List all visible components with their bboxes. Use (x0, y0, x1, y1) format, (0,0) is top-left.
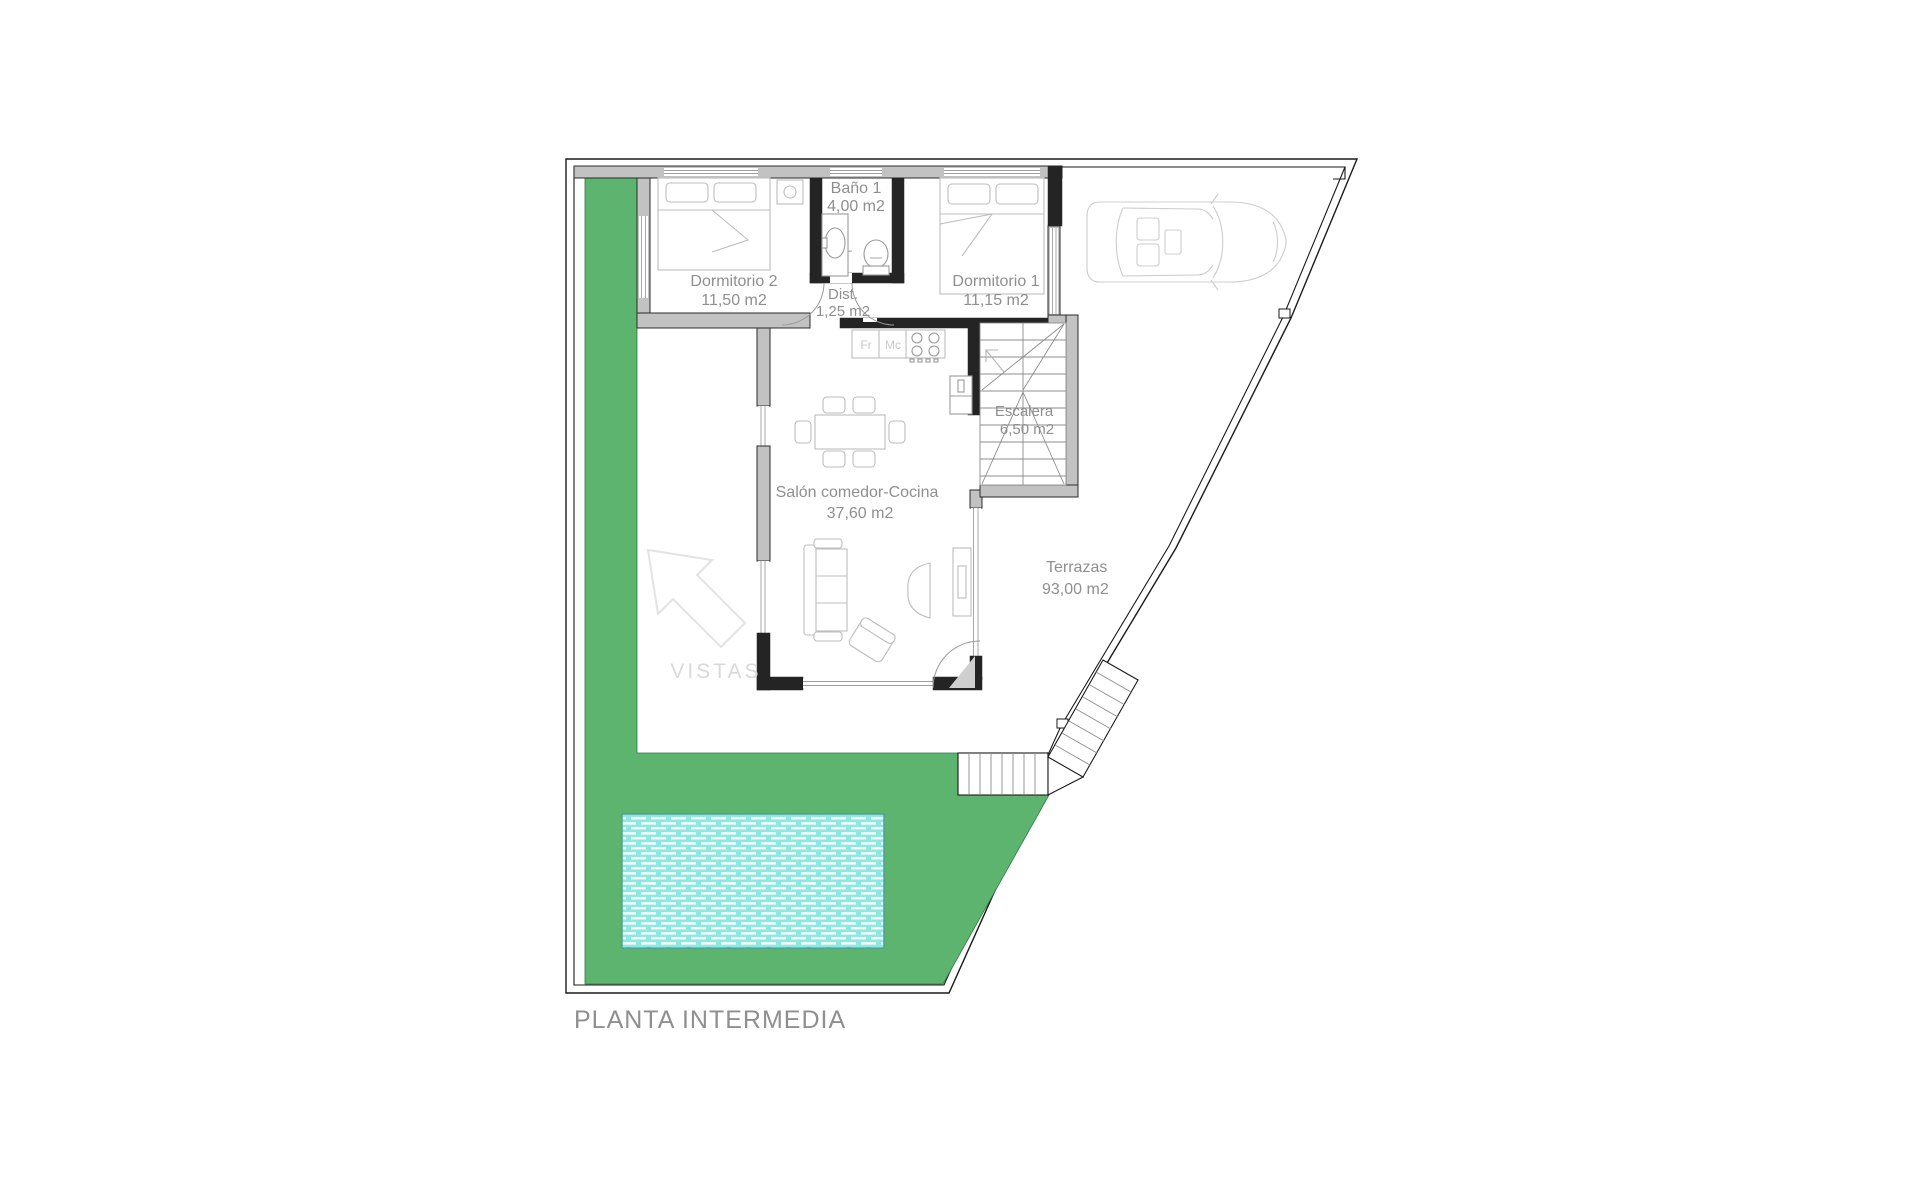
dormitorio1-name: Dormitorio 1 (952, 273, 1039, 290)
vistas-indicator: VISTAS (648, 550, 762, 683)
salon-area: 37,60 m2 (827, 505, 894, 522)
boundary-notch-top (1333, 167, 1345, 179)
nightstand-dormitorio2 (777, 180, 803, 204)
terrazas-name: Terrazas (1046, 559, 1107, 576)
boundary-notch-mid (1279, 309, 1290, 318)
floor-plan-page: Fr Mc (0, 0, 1920, 1200)
car-top-view-icon (1087, 194, 1286, 290)
escalera-name: Escalera (995, 403, 1054, 420)
label-escalera: Escalera 6,50 m2 (995, 403, 1054, 438)
dormitorio2-name: Dormitorio 2 (690, 273, 777, 290)
dining-table-set (795, 397, 905, 467)
label-bano1: Baño 1 4,00 m2 (827, 180, 885, 215)
kitchen-counter: Fr Mc (852, 330, 945, 362)
terrazas-area: 93,00 m2 (1042, 581, 1109, 598)
page-title: PLANTA INTERMEDIA (574, 1006, 846, 1034)
dormitorio2-area: 11,50 m2 (701, 292, 767, 309)
dormitorio1-area: 11,15 m2 (963, 292, 1029, 309)
tall-fridge-unit (950, 376, 972, 414)
sofa (804, 539, 847, 641)
dist-area: 1,25 m2 (816, 303, 870, 320)
label-dormitorio2: Dormitorio 2 11,50 m2 (690, 273, 777, 309)
microwave-unit-label: Mc (885, 338, 901, 352)
north-windows (664, 168, 1040, 176)
dist-name: Dist. (828, 286, 858, 303)
exterior-stairs (958, 660, 1138, 795)
label-salon: Salón comedor-Cocina 37,60 m2 (776, 484, 939, 522)
label-terrazas: Terrazas 93,00 m2 (1042, 559, 1109, 598)
bano1-name: Baño 1 (831, 180, 882, 197)
bathroom-vanity (822, 214, 848, 276)
swimming-pool (622, 814, 884, 948)
bano1-area: 4,00 m2 (827, 198, 885, 215)
salon-name: Salón comedor-Cocina (776, 484, 939, 501)
toilet (863, 240, 889, 275)
side-table (908, 563, 930, 618)
escalera-area: 6,50 m2 (1000, 421, 1054, 438)
vistas-arrow-icon (648, 550, 745, 647)
fridge-unit-label: Fr (860, 338, 871, 352)
label-dist: Dist. 1,25 m2 (816, 286, 870, 320)
floor-plan-canvas: Fr Mc (0, 0, 1920, 1200)
bed-dormitorio2 (658, 178, 770, 270)
armchair (847, 616, 896, 663)
vistas-label: VISTAS (670, 660, 761, 683)
tv-cabinet (953, 548, 971, 616)
